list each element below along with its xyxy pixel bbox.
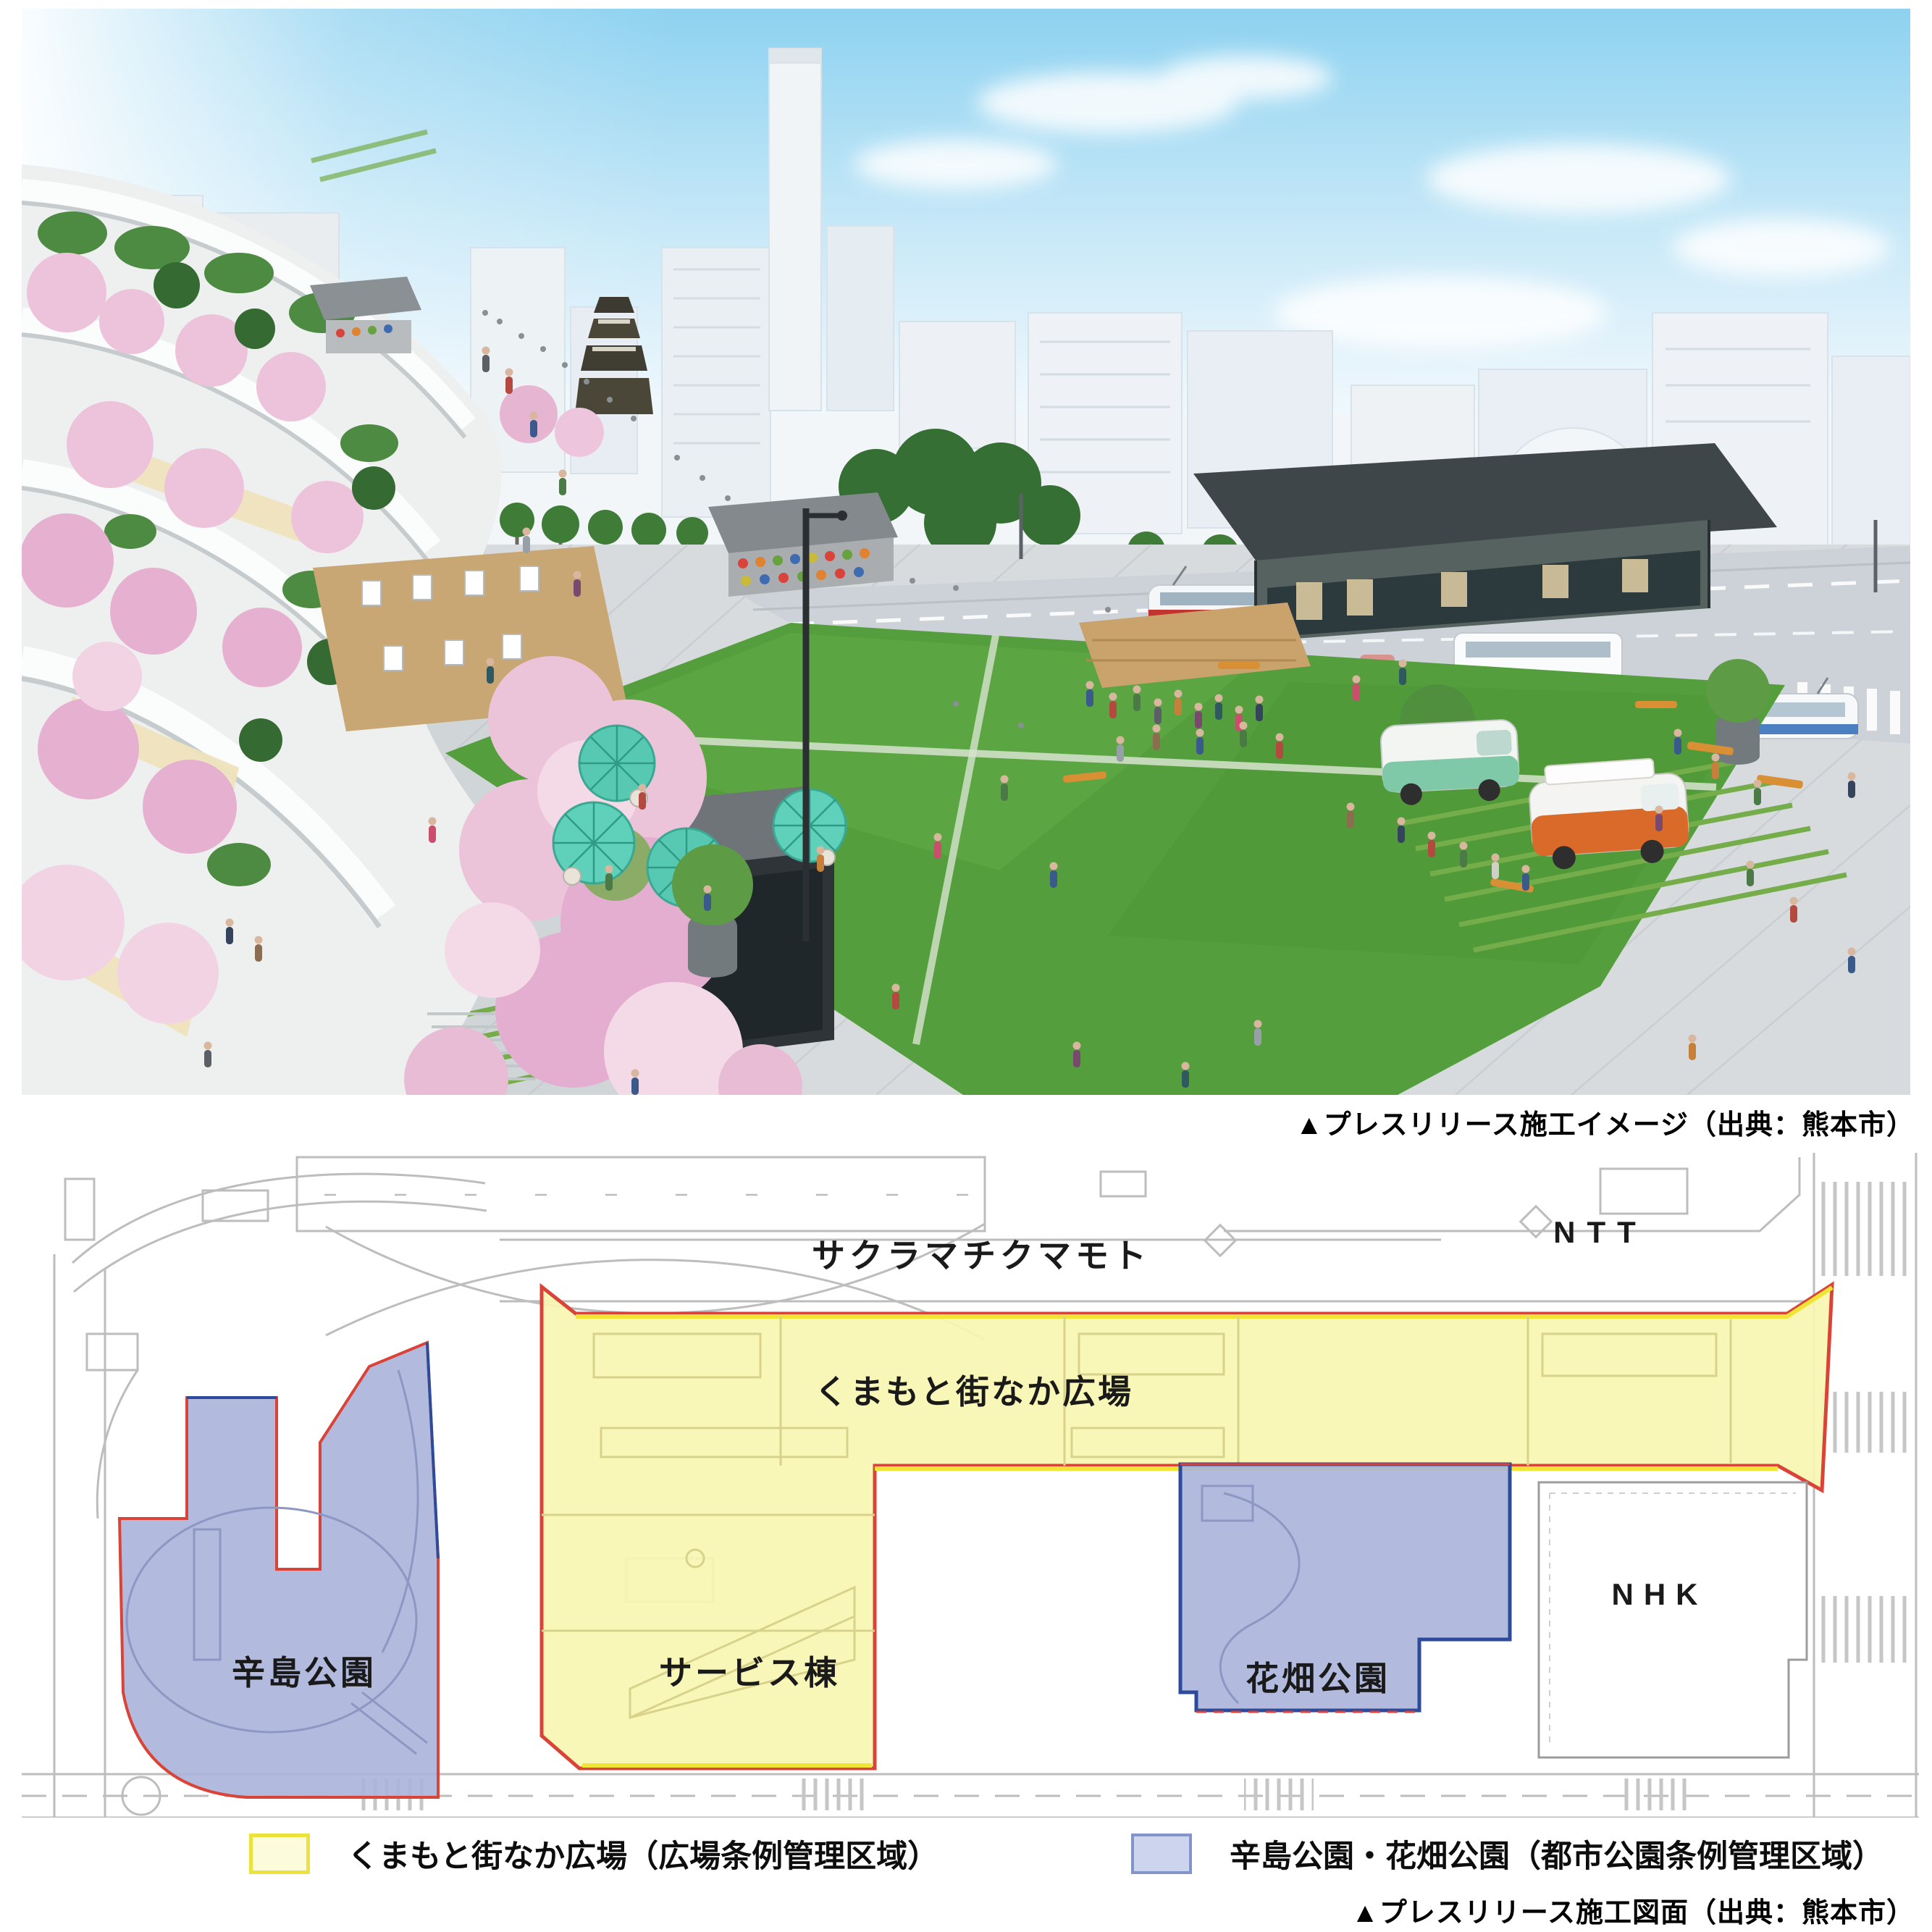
legend-label-plaza: くまもと街なか広場（広場条例管理区域） xyxy=(348,1831,938,1876)
site-plan-caption: ▲プレスリリース施工図面（出典：熊本市） xyxy=(1351,1890,1915,1930)
nhk-building xyxy=(1539,1482,1807,1757)
label-nhk: NHK xyxy=(1612,1577,1708,1611)
legend-item-plaza: くまもと街なか広場（広場条例管理区域） xyxy=(249,1831,938,1877)
rendering-caption: ▲プレスリリース施工イメージ（出典：熊本市） xyxy=(1295,1102,1915,1142)
label-ntt: NTT xyxy=(1553,1215,1647,1249)
rendering-scene xyxy=(22,9,1910,1095)
site-plan-map: サクラマチクマモト NTT くまもと街なか広場 辛島公園 サービス棟 花畑公園 … xyxy=(22,1153,1919,1818)
legend-swatch-yellow xyxy=(249,1834,310,1874)
press-release-figure: ▲プレスリリース施工イメージ（出典：熊本市） xyxy=(0,0,1932,1932)
cherry-tree-distant xyxy=(500,385,558,443)
label-machinaka-plaza: くまもと街なか広場 xyxy=(815,1373,1133,1411)
legend-swatch-blue xyxy=(1131,1834,1192,1874)
site-plan-svg: サクラマチクマモト NTT くまもと街なか広場 辛島公園 サービス棟 花畑公園 … xyxy=(22,1153,1919,1818)
label-hanabatake-park: 花畑公園 xyxy=(1246,1660,1390,1697)
label-sakuramachi: サクラマチクマモト xyxy=(812,1237,1151,1274)
label-service-building: サービス棟 xyxy=(659,1654,840,1692)
construction-rendering-image xyxy=(22,9,1910,1095)
legend-item-parks: 辛島公園・花畑公園（都市公園条例管理区域） xyxy=(1131,1831,1883,1877)
legend-label-parks: 辛島公園・花畑公園（都市公園条例管理区域） xyxy=(1230,1831,1883,1876)
label-karashima-park: 辛島公園 xyxy=(232,1654,377,1692)
